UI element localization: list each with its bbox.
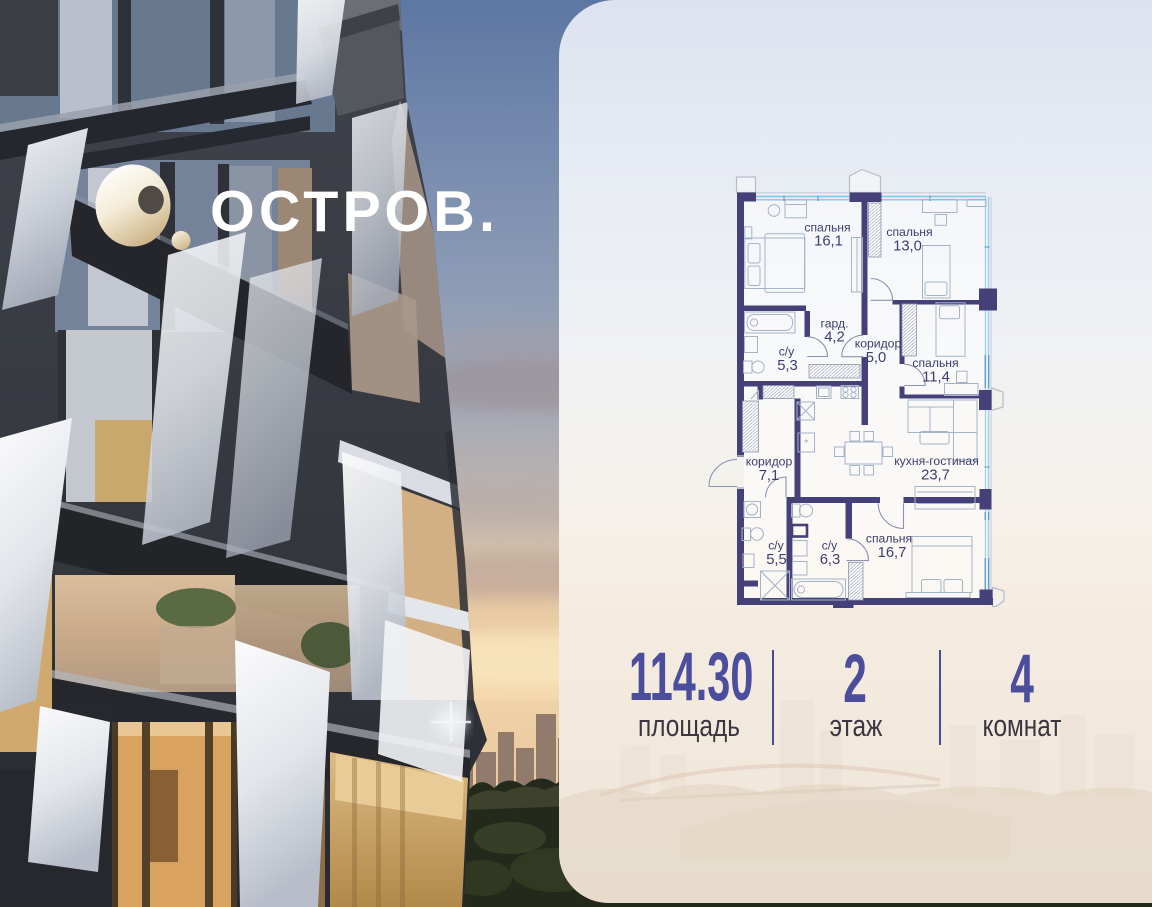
svg-text:с/у: с/у [779, 345, 795, 359]
svg-text:с/у: с/у [768, 539, 784, 553]
svg-text:кухня-гостиная: кухня-гостиная [894, 454, 979, 468]
svg-text:спальня: спальня [866, 532, 912, 546]
svg-text:23,7: 23,7 [921, 468, 950, 484]
svg-text:11,4: 11,4 [922, 370, 950, 386]
svg-text:спальня: спальня [886, 225, 932, 239]
svg-text:гард.: гард. [821, 317, 849, 331]
svg-text:16,1: 16,1 [814, 234, 843, 250]
svg-text:7,1: 7,1 [759, 468, 780, 484]
svg-text:спальня: спальня [912, 356, 958, 370]
svg-text:с/у: с/у [822, 539, 838, 553]
svg-text:4,2: 4,2 [824, 330, 845, 346]
svg-text:6,3: 6,3 [820, 552, 841, 568]
svg-text:спальня: спальня [804, 221, 850, 235]
svg-text:коридор: коридор [855, 337, 902, 351]
svg-text:16,7: 16,7 [878, 545, 907, 561]
svg-text:коридор: коридор [746, 455, 793, 469]
svg-text:13,0: 13,0 [893, 239, 922, 255]
svg-text:5,5: 5,5 [766, 552, 787, 568]
svg-text:5,0: 5,0 [866, 350, 887, 366]
svg-text:5,3: 5,3 [777, 358, 798, 374]
svg-text:ОСТРОВ.: ОСТРОВ. [210, 180, 499, 244]
